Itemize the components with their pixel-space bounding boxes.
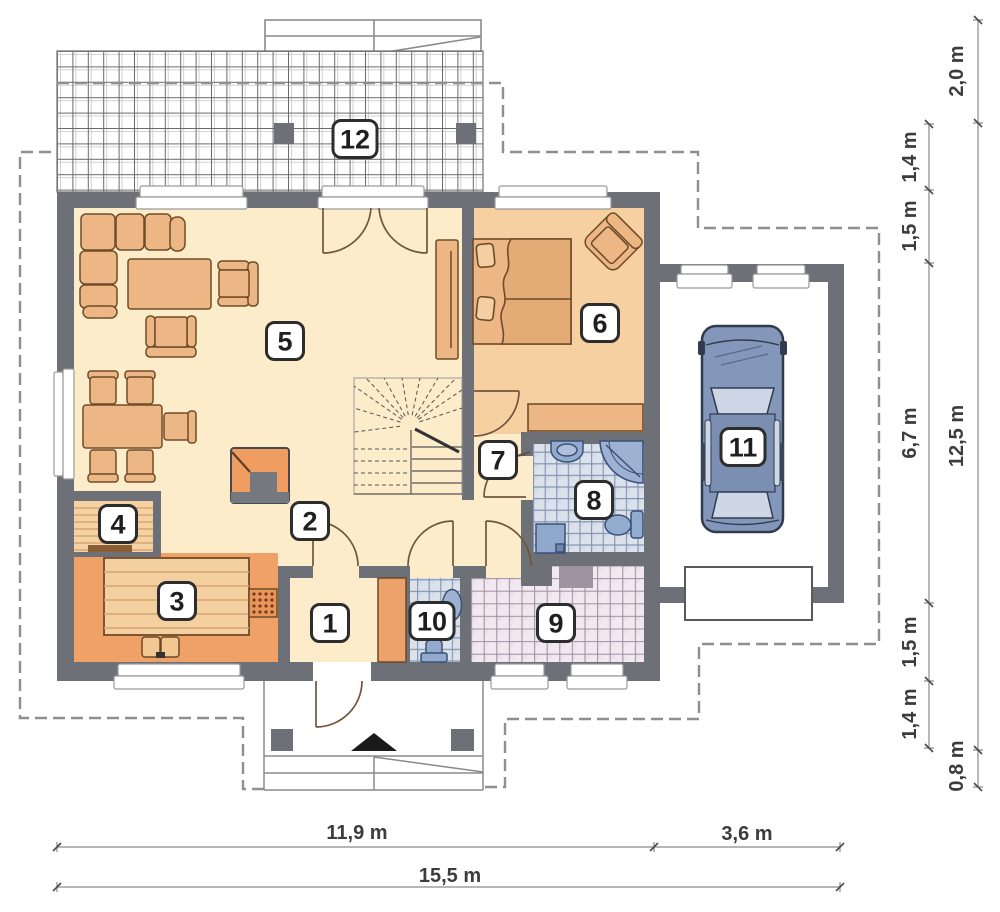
svg-text:12: 12 — [340, 125, 370, 155]
svg-text:6: 6 — [592, 309, 607, 339]
svg-text:8: 8 — [586, 486, 601, 516]
svg-text:2: 2 — [302, 507, 317, 537]
svg-text:9: 9 — [548, 609, 563, 639]
svg-text:12,5 m: 12,5 m — [946, 405, 968, 467]
svg-text:11,9 m: 11,9 m — [326, 822, 387, 844]
svg-text:1,4 m: 1,4 m — [899, 131, 921, 182]
svg-text:15,5 m: 15,5 m — [419, 865, 481, 887]
svg-text:1,4 m: 1,4 m — [899, 688, 921, 739]
svg-text:11: 11 — [729, 433, 758, 463]
svg-text:3: 3 — [169, 587, 184, 617]
svg-text:5: 5 — [277, 327, 292, 357]
svg-text:6,7 m: 6,7 m — [899, 407, 921, 458]
svg-text:3,6 m: 3,6 m — [721, 823, 772, 845]
svg-text:1,5 m: 1,5 m — [899, 616, 921, 667]
svg-text:1,5 m: 1,5 m — [899, 200, 921, 251]
svg-text:7: 7 — [490, 446, 505, 476]
svg-text:4: 4 — [110, 510, 125, 540]
svg-text:0,8 m: 0,8 m — [946, 740, 968, 791]
svg-text:2,0 m: 2,0 m — [946, 45, 968, 96]
svg-text:1: 1 — [322, 609, 337, 639]
svg-text:10: 10 — [417, 607, 447, 637]
